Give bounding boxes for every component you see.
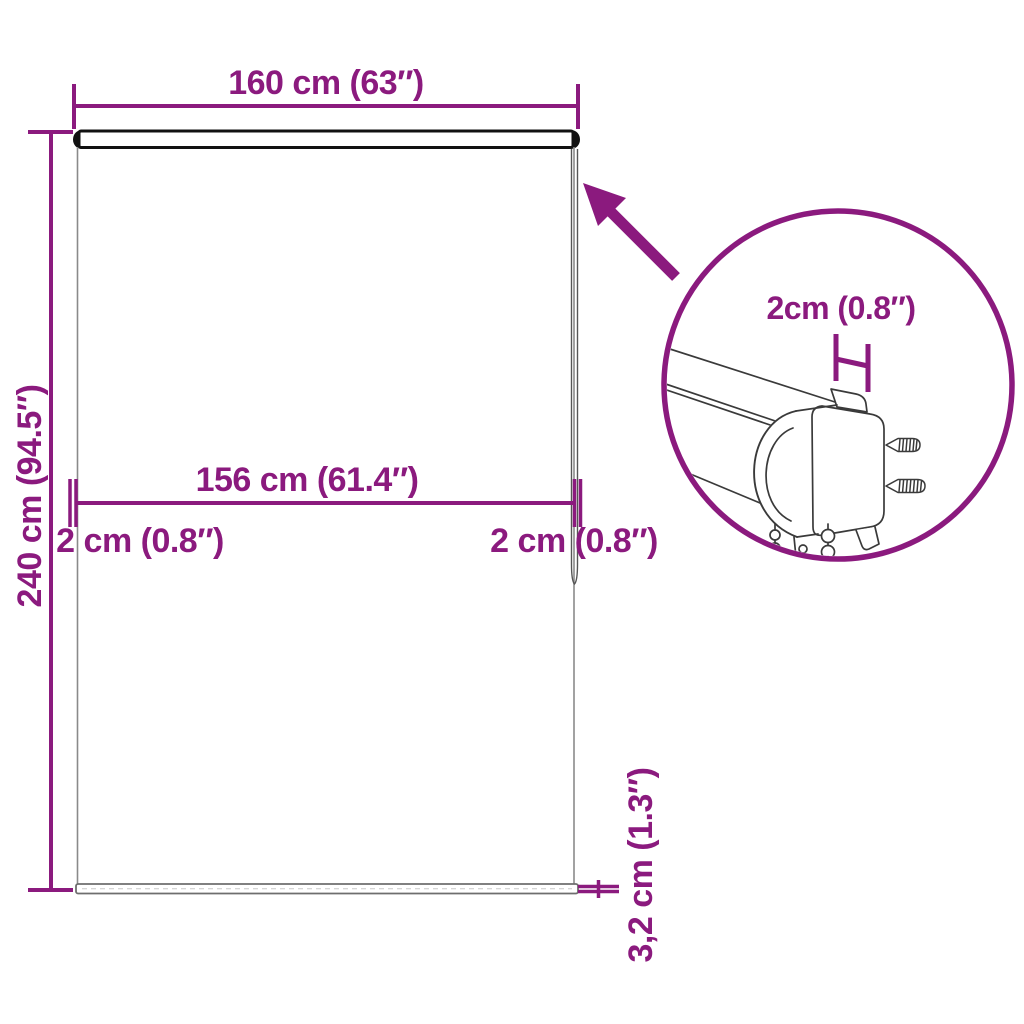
right-gap-label: 2 cm (0.8″) bbox=[490, 524, 658, 558]
wall-plate bbox=[812, 406, 884, 535]
blind-bottom-rail bbox=[76, 884, 578, 894]
zoom-arrow-icon bbox=[583, 183, 676, 277]
detail-bracket-depth-label: 2cm (0.8″) bbox=[766, 292, 915, 324]
diagram-linework bbox=[0, 0, 1024, 1024]
left-gap-label: 2 cm (0.8″) bbox=[56, 524, 224, 558]
total-height-label: 240 cm (94.5″) bbox=[13, 385, 47, 608]
dimension-diagram: 160 cm (63″) 240 cm (94.5″) 156 cm (61.4… bbox=[0, 0, 1024, 1024]
roller-blind-drawing bbox=[73, 130, 580, 893]
blind-top-bar bbox=[73, 130, 580, 148]
bottom-thickness-label: 3,2 cm (1.3″) bbox=[624, 768, 658, 963]
bottom-thickness-dimension-line bbox=[578, 880, 619, 898]
bar-tube bbox=[79, 131, 573, 148]
inner-width-label: 156 cm (61.4″) bbox=[196, 463, 419, 497]
total-width-label: 160 cm (63″) bbox=[228, 66, 424, 100]
